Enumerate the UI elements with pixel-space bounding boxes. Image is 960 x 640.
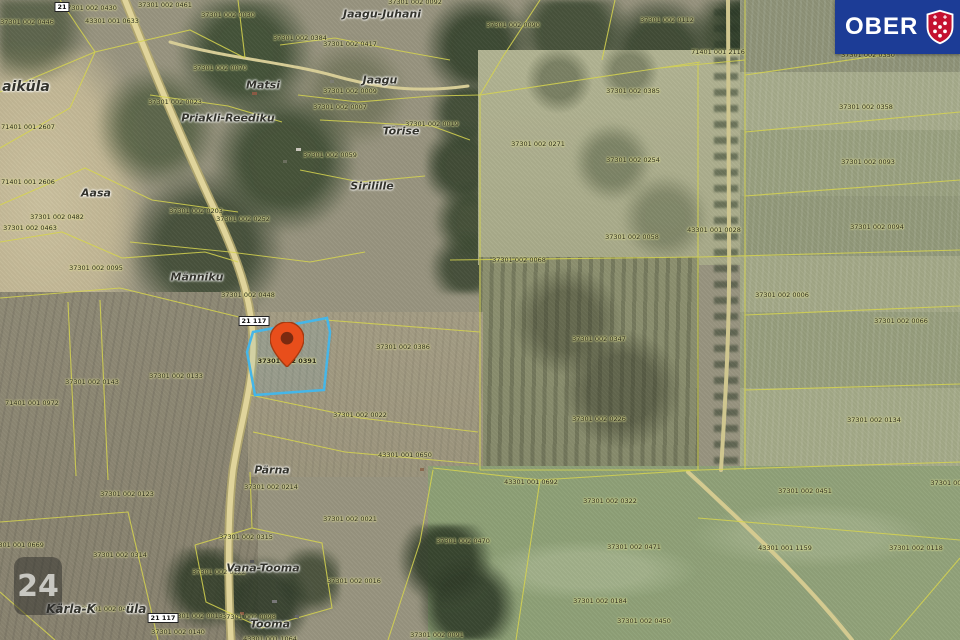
- place-name: Sirilille: [350, 180, 393, 193]
- place-name: Tooma: [250, 618, 290, 631]
- parcel-label: 37301 002 0112: [640, 16, 694, 24]
- place-name: Priakli-Reediku: [181, 112, 274, 125]
- place-name: Tõrise: [383, 125, 420, 138]
- parcel-label: 37301 002 0314: [93, 551, 147, 559]
- parcel-label: 37301 002 0482: [30, 213, 84, 221]
- parcel-label: 37301 002 0347: [572, 335, 626, 343]
- parcel-label: 37301 002 0252: [216, 215, 270, 223]
- brand-text-left: OBER: [845, 13, 918, 41]
- parcel-label: 37301 002 0095: [69, 264, 123, 272]
- parcel-label: 37301 002 0430: [63, 4, 117, 12]
- parcel-label: 37301 002 0066: [874, 317, 928, 325]
- parcel-label: 37301 002 0133: [149, 372, 203, 380]
- parcel-label: 37301 002 0322: [583, 497, 637, 505]
- parcel-label: 37301 002 0118: [889, 544, 943, 552]
- parcel-label: 37301 002 0254: [606, 156, 660, 164]
- parcel-label: 37301 001 0669: [0, 541, 44, 549]
- parcel-label: 71401 001 2607: [1, 123, 55, 131]
- parcel-label: 37301 002 0092: [388, 0, 442, 6]
- parcel-label: 37301 002 0143: [65, 378, 119, 386]
- parcel-label: 37301 002 0386: [376, 343, 430, 351]
- parcel-label: 37301 002 0007: [313, 103, 367, 111]
- parcel-label: 37301 002 0058: [605, 233, 659, 241]
- parcel-label: 37301 002 0271: [511, 140, 565, 148]
- parcel-label: 43301 001 1064: [243, 635, 297, 640]
- parcel-label: 71401 001 2606: [1, 178, 55, 186]
- parcel-label: 37301 002 0315: [219, 533, 273, 541]
- parcel-label: 37301 002 0470: [436, 537, 490, 545]
- parcel-label: 71401 001 0972: [5, 399, 59, 407]
- place-name: Jaagu-Juhani: [343, 8, 421, 21]
- parcel-label: 43301 001 0650: [378, 451, 432, 459]
- parcel-label: 37301 002 0093: [841, 158, 895, 166]
- parcel-label: 37301 002 0471: [607, 543, 661, 551]
- parcel-label: 37301 002 0006: [755, 291, 809, 299]
- watermark-24: 24: [14, 557, 62, 615]
- place-name: Vana-Tooma: [226, 562, 299, 575]
- parcel-label: 37301 002 0451: [778, 487, 832, 495]
- parcel-label: 37301 002 0134: [847, 416, 901, 424]
- parcel-label: 37301 002 0021: [323, 515, 377, 523]
- brand-banner: OBER HA: [835, 0, 960, 54]
- place-name: Männiku: [171, 271, 224, 284]
- place-name: Matsi: [246, 79, 280, 92]
- place-name: üla: [126, 602, 147, 616]
- parcel-label: 37301 002 0094: [850, 223, 904, 231]
- parcel-label: 43301 001 0633: [85, 17, 139, 25]
- labels-layer: 37301 002 043037301 002 046137301 002 00…: [0, 0, 960, 640]
- parcel-label: 37301 002 0059: [303, 151, 357, 159]
- parcel-label: 37301 002 0358: [839, 103, 893, 111]
- parcel-label: 37301 002 0022: [333, 411, 387, 419]
- parcel-label: 37301 002 0226: [572, 415, 626, 423]
- parcel-label: 37301 002 0448: [221, 291, 275, 299]
- location-pin-icon[interactable]: [270, 322, 304, 367]
- place-name: Pärna: [254, 464, 289, 477]
- road-number-badge: 21 117: [148, 613, 179, 623]
- parcel-label: 37301 002 0023: [148, 98, 202, 106]
- parcel-label: 37301 002 0030: [201, 11, 255, 19]
- parcel-label: 43301 001 0028: [687, 226, 741, 234]
- watermark-text: 24: [17, 569, 59, 604]
- parcel-label: 37301 002 0385: [606, 87, 660, 95]
- parcel-label: 37301 002 0446: [0, 18, 54, 26]
- place-name: Aasa: [81, 187, 111, 200]
- parcel-label: 37301 002 0009: [323, 87, 377, 95]
- place-name: aiküla: [2, 79, 50, 95]
- map-canvas[interactable]: 37301 002 043037301 002 046137301 002 00…: [0, 0, 960, 640]
- parcel-label: 43301 001 0692: [504, 478, 558, 486]
- brand-shield-icon: [925, 9, 955, 45]
- parcel-label: 37301 002 0140: [151, 628, 205, 636]
- parcel-label: 37301 002 0463: [3, 224, 57, 232]
- parcel-label: 37301 002: [930, 479, 960, 487]
- parcel-label: 37301 002 0091: [410, 631, 464, 639]
- road-number-badge: 21: [54, 2, 69, 12]
- parcel-label: 71401 001 2116: [691, 48, 745, 56]
- parcel-label: 37301 002 0384: [273, 34, 327, 42]
- parcel-label: 37301 002 0450: [617, 617, 671, 625]
- parcel-label: 37301 002 0417: [323, 40, 377, 48]
- parcel-label: 37301 002 0016: [327, 577, 381, 585]
- parcel-label: 37301 002 0184: [573, 597, 627, 605]
- parcel-label: 37301 002 0203: [169, 207, 223, 215]
- parcel-label: 37301 002 0214: [244, 483, 298, 491]
- parcel-label: 43301 001 1159: [758, 544, 812, 552]
- road-number-badge: 21 117: [239, 316, 270, 326]
- parcel-label: 37301 002 0068: [492, 256, 546, 264]
- place-name: Jaagu: [363, 74, 398, 87]
- parcel-label: 37301 002 0090: [486, 21, 540, 29]
- parcel-label: 37301 002 0070: [193, 64, 247, 72]
- parcel-label: 37301 002 0123: [100, 490, 154, 498]
- parcel-label: 37301 002 0461: [138, 1, 192, 9]
